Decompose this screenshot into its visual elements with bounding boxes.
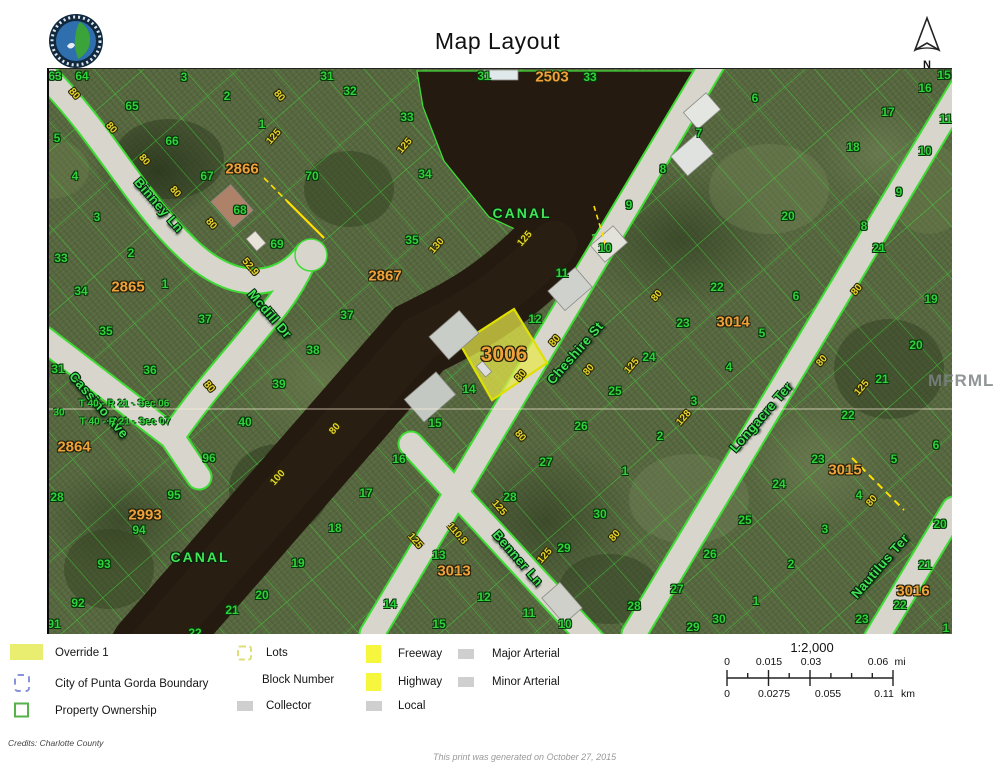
lot-dimension-label: 80 [167, 184, 183, 200]
lot-number-label: 5 [891, 452, 898, 466]
page-title: Map Layout [0, 28, 995, 55]
lot-dimension-label: 110.8 [445, 521, 469, 547]
km-unit: km [901, 688, 915, 700]
lot-number-label: 33 [400, 110, 413, 124]
lot-number-label: 16 [392, 452, 405, 466]
legend-lots: Lots [266, 647, 288, 659]
block-number-label: 3015 [828, 462, 861, 479]
lot-number-label: 20 [781, 209, 794, 223]
lot-dimension-label: 80 [203, 216, 219, 232]
lot-number-label: 69 [270, 237, 283, 251]
lot-number-label: 17 [359, 486, 372, 500]
lot-number-label: 7 [696, 126, 703, 140]
legend-minor-arterial: Minor Arterial [492, 676, 560, 688]
km-tick-3: 0.11 [874, 688, 894, 700]
lot-number-label: 23 [811, 452, 824, 466]
lot-dimension-label: 100 [268, 468, 287, 488]
local-swatch [366, 701, 382, 711]
section-township-label: T 40 - R 21 - Sec 06 [79, 399, 170, 410]
lot-number-label: 64 [75, 69, 88, 83]
lot-number-label: 91 [47, 617, 60, 631]
legend-city: City of Punta Gorda Boundary [55, 678, 208, 690]
lot-number-label: 96 [202, 451, 215, 465]
lot-dimension-label: 125 [395, 136, 414, 156]
lot-dimension-label: 80 [581, 362, 597, 378]
lot-number-label: 8 [660, 162, 667, 176]
city-boundary-swatch [14, 674, 30, 692]
lot-number-label: 20 [255, 588, 268, 602]
lot-dimension-label: 125 [535, 546, 554, 566]
lot-dimension-label: 80 [136, 152, 152, 168]
lot-number-label: 11 [523, 606, 536, 620]
km-tick-0: 0 [724, 688, 730, 700]
lot-number-label: 29 [686, 620, 699, 634]
street-name-label: Longacre Ter [727, 379, 796, 455]
lot-number-label: 4 [856, 488, 863, 502]
lot-dimension-label: 125 [405, 531, 424, 551]
lot-number-label: 40 [238, 415, 251, 429]
lot-number-label: 35 [99, 324, 112, 338]
lot-number-label: 22 [710, 280, 723, 294]
block-number-label: 3013 [437, 563, 470, 580]
lot-dimension-label: 125 [264, 127, 283, 147]
lot-dimension-label: 80 [513, 368, 529, 384]
lot-number-label: 1 [259, 117, 266, 131]
lot-number-label: 15 [937, 68, 950, 82]
highway-swatch [366, 673, 381, 691]
lot-number-label: 15 [428, 416, 441, 430]
lot-number-label: 14 [383, 597, 396, 611]
lot-dimension-label: 80 [607, 528, 623, 544]
section-township-label: T 40 - R 21 - Sec 07 [80, 417, 171, 428]
lot-dimension-label: 52.9 [239, 256, 260, 278]
lot-dimension-label: 80 [849, 282, 865, 298]
legend-collector: Collector [266, 700, 311, 712]
lot-dimension-label: 80 [649, 288, 665, 304]
lot-number-label: 25 [608, 384, 621, 398]
lot-number-label: 24 [642, 350, 655, 364]
lot-number-label: 4 [726, 360, 733, 374]
map-canvas[interactable]: 6364656632167686970543332341353132333133… [47, 68, 952, 634]
mfrmls-watermark: MFRMLS [928, 371, 995, 391]
lot-number-label: 31 [51, 362, 64, 376]
lot-number-label: 9 [626, 198, 633, 212]
lot-number-label: 31 [477, 69, 490, 83]
north-arrow: N [905, 16, 949, 68]
lot-number-label: 11 [940, 112, 952, 126]
section-township-label: 30 [53, 408, 64, 419]
block-number-label: 2864 [57, 439, 90, 456]
lot-number-label: 12 [528, 312, 541, 326]
block-number-label: 2993 [128, 507, 161, 524]
km-tick-2: 0.055 [815, 688, 841, 700]
lot-dimension-label: 80 [66, 86, 82, 102]
lot-number-label: 5 [54, 131, 61, 145]
lot-number-label: 37 [340, 308, 353, 322]
lot-number-label: 3 [181, 70, 188, 84]
lot-number-label: 30 [593, 507, 606, 521]
mi-tick-0: 0 [724, 656, 730, 668]
lots-swatch [237, 646, 252, 661]
lot-number-label: 21 [872, 241, 885, 255]
km-tick-1: 0.0275 [758, 688, 790, 700]
lot-number-label: 21 [875, 372, 888, 386]
lot-number-label: 22 [841, 408, 854, 422]
block-number-label: 3016 [896, 583, 929, 600]
mi-tick-1: 0.015 [756, 656, 782, 668]
lot-number-label: 34 [74, 284, 87, 298]
lot-number-label: 2 [128, 246, 135, 260]
scale-bar: 1:2,000 0 0.015 0.03 0.06 mi 0 0.0275 0.… [712, 640, 952, 702]
legend-block-number: Block Number [262, 674, 334, 686]
lot-number-label: 6 [752, 91, 759, 105]
lot-dimension-label: 80 [327, 421, 343, 437]
lot-number-label: 30 [712, 612, 725, 626]
credits-text: Credits: Charlotte County [8, 738, 103, 748]
lot-number-label: 28 [627, 599, 640, 613]
lot-dimension-label: 125 [515, 229, 534, 249]
lot-number-label: 2 [224, 89, 231, 103]
lot-number-label: 23 [855, 612, 868, 626]
lot-number-label: 17 [881, 105, 894, 119]
lot-dimension-label: 125 [852, 378, 871, 398]
lot-number-label: 67 [200, 169, 213, 183]
mi-tick-2: 0.03 [801, 656, 821, 668]
lot-number-label: 6 [793, 289, 800, 303]
lot-number-label: 63 [48, 69, 61, 83]
lot-number-label: 10 [918, 144, 931, 158]
map-layout-page: Map Layout N [0, 0, 995, 768]
scale-bar-ticks [712, 670, 932, 686]
lot-number-label: 70 [305, 169, 318, 183]
lot-number-label: 24 [772, 477, 785, 491]
lot-number-label: 4 [72, 169, 79, 183]
lot-number-label: 33 [583, 70, 596, 84]
canal-label: CANAL [171, 549, 230, 565]
lot-number-label: 20 [909, 338, 922, 352]
lot-number-label: 22 [188, 626, 201, 634]
property-ownership-swatch [14, 703, 29, 718]
lot-number-label: 19 [291, 556, 304, 570]
lot-number-label: 1 [622, 464, 629, 478]
lot-number-label: 36 [143, 363, 156, 377]
lot-number-label: 5 [759, 326, 766, 340]
mi-tick-3: 0.06 [868, 656, 888, 668]
lot-number-label: 8 [861, 219, 868, 233]
legend-local: Local [398, 700, 426, 712]
lot-number-label: 2 [788, 557, 795, 571]
lot-number-label: 19 [924, 292, 937, 306]
mi-unit: mi [894, 656, 905, 668]
map-labels-layer: 6364656632167686970543332341353132333133… [49, 69, 952, 634]
lot-number-label: 92 [71, 596, 84, 610]
lot-number-label: 66 [165, 134, 178, 148]
lot-number-label: 31 [320, 69, 333, 83]
block-number-label: 2503 [535, 69, 568, 86]
lot-number-label: 1 [753, 594, 760, 608]
legend-override: Override 1 [55, 647, 109, 659]
legend-highway: Highway [398, 676, 442, 688]
lot-number-label: 21 [918, 558, 931, 572]
lot-number-label: 32 [343, 84, 356, 98]
lot-number-label: 27 [539, 455, 552, 469]
block-number-label: 3006 [481, 343, 528, 367]
lot-number-label: 33 [54, 251, 67, 265]
lot-number-label: 11 [556, 266, 569, 280]
override-swatch [10, 644, 43, 660]
lot-dimension-label: 80 [271, 88, 287, 104]
lot-number-label: 1 [943, 621, 950, 634]
minor-arterial-swatch [458, 677, 474, 687]
canal-label: CANAL [493, 205, 552, 221]
lot-number-label: 6 [933, 438, 940, 452]
lot-dimension-label: 80 [547, 333, 563, 349]
lot-number-label: 18 [328, 521, 341, 535]
lot-number-label: 27 [670, 582, 683, 596]
lot-dimension-label: 128 [674, 408, 693, 428]
lot-number-label: 10 [598, 241, 611, 255]
lot-number-label: 35 [405, 233, 418, 247]
lot-number-label: 1 [162, 277, 169, 291]
lot-number-label: 65 [125, 99, 138, 113]
lot-number-label: 95 [167, 488, 180, 502]
lot-number-label: 9 [896, 185, 903, 199]
block-number-label: 2866 [225, 161, 258, 178]
lot-dimension-label: 80 [864, 493, 880, 509]
lot-dimension-label: 80 [814, 353, 830, 369]
block-number-label: 2867 [368, 268, 401, 285]
lot-number-label: 3 [94, 210, 101, 224]
street-name-label: Cheshire St [544, 319, 606, 388]
lot-number-label: 28 [50, 490, 63, 504]
lot-number-label: 14 [462, 382, 475, 396]
lot-number-label: 93 [97, 557, 110, 571]
lot-number-label: 21 [225, 603, 238, 617]
lot-number-label: 12 [477, 590, 490, 604]
lot-dimension-label: 80 [103, 120, 119, 136]
freeway-swatch [366, 645, 381, 663]
street-name-label: Mcdill Dr [245, 287, 295, 342]
lot-number-label: 20 [933, 517, 946, 531]
lot-dimension-label: 130 [427, 236, 446, 256]
collector-swatch [237, 701, 253, 711]
lot-number-label: 3 [822, 522, 829, 536]
lot-number-label: 18 [846, 140, 859, 154]
lot-number-label: 37 [198, 312, 211, 326]
lot-number-label: 94 [132, 523, 145, 537]
major-arterial-swatch [458, 649, 474, 659]
lot-number-label: 29 [557, 541, 570, 555]
street-name-label: Binney Ln [131, 175, 187, 236]
lot-number-label: 10 [558, 617, 571, 631]
lot-number-label: 39 [272, 377, 285, 391]
lot-number-label: 26 [703, 547, 716, 561]
lot-number-label: 26 [574, 419, 587, 433]
legend-major-arterial: Major Arterial [492, 648, 560, 660]
lot-number-label: 38 [306, 343, 319, 357]
lot-number-label: 25 [738, 513, 751, 527]
lot-number-label: 22 [893, 598, 906, 612]
lot-number-label: 13 [432, 548, 445, 562]
lot-number-label: 34 [418, 167, 431, 181]
lot-number-label: 2 [657, 429, 664, 443]
block-number-label: 3014 [716, 314, 749, 331]
lot-number-label: 23 [676, 316, 689, 330]
legend-freeway: Freeway [398, 648, 442, 660]
legend-property: Property Ownership [55, 705, 157, 717]
block-number-label: 2865 [111, 279, 144, 296]
lot-number-label: 68 [233, 203, 246, 217]
lot-number-label: 3 [691, 394, 698, 408]
scale-ratio: 1:2,000 [712, 640, 912, 655]
lot-number-label: 15 [432, 617, 445, 631]
lot-number-label: 16 [918, 81, 931, 95]
lot-dimension-label: 80 [512, 428, 528, 444]
lot-dimension-label: 80 [201, 379, 217, 395]
generated-date-text: This print was generated on October 27, … [433, 752, 616, 762]
lot-dimension-label: 125 [622, 356, 641, 376]
lot-number-label: 28 [503, 490, 516, 504]
